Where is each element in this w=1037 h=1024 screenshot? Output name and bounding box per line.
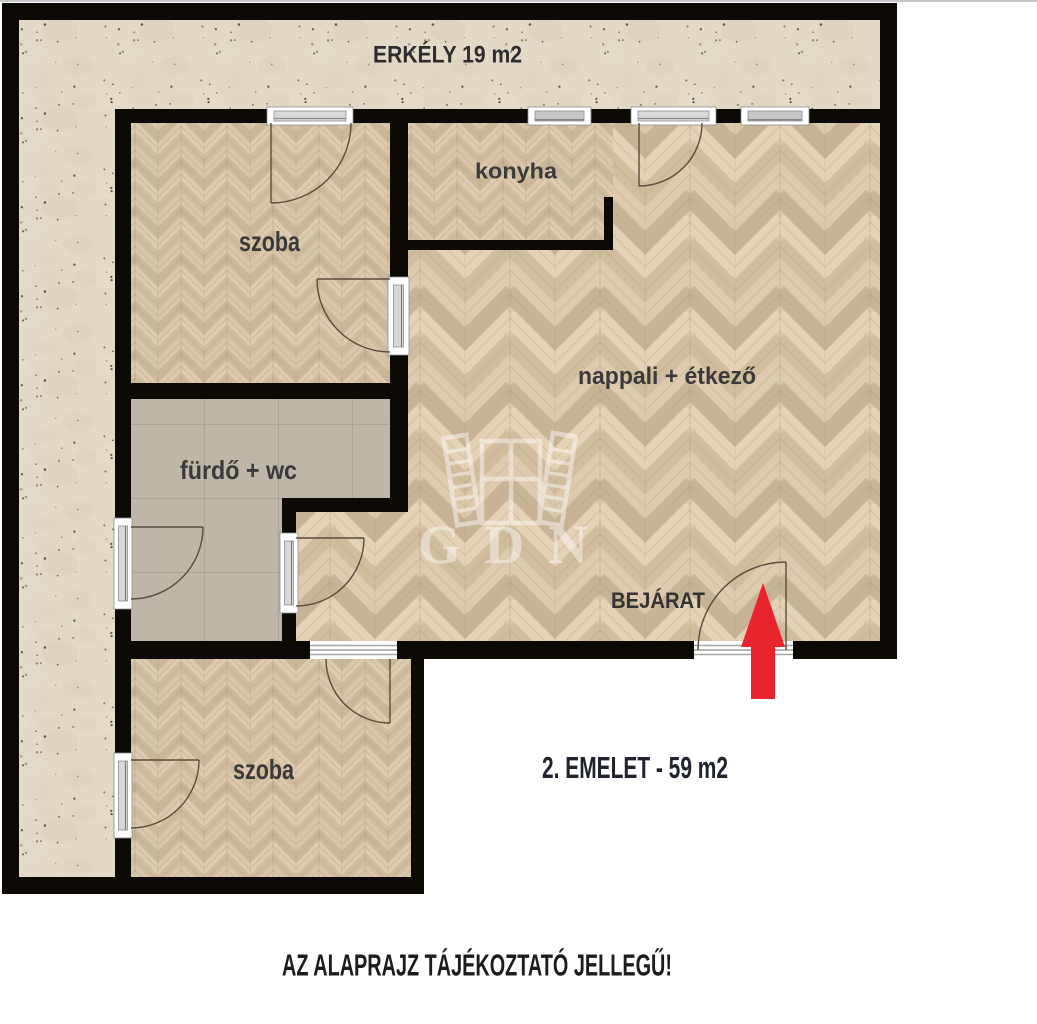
svg-text:ERKÉLY 19 m2: ERKÉLY 19 m2	[373, 41, 522, 69]
svg-text:GDN: GDN	[418, 514, 614, 575]
svg-text:BEJÁRAT: BEJÁRAT	[611, 588, 706, 613]
svg-text:konyha: konyha	[475, 159, 558, 184]
svg-text:2. EMELET - 59 m2: 2. EMELET - 59 m2	[542, 750, 728, 785]
svg-text:szoba: szoba	[233, 754, 294, 785]
svg-text:szoba: szoba	[239, 226, 300, 257]
svg-text:fürdő + wc: fürdő + wc	[180, 455, 297, 485]
svg-text:AZ ALAPRAJZ TÁJÉKOZTATÓ JELLEG: AZ ALAPRAJZ TÁJÉKOZTATÓ JELLEGŰ!	[282, 947, 672, 983]
svg-text:nappali + étkező: nappali + étkező	[578, 363, 756, 390]
